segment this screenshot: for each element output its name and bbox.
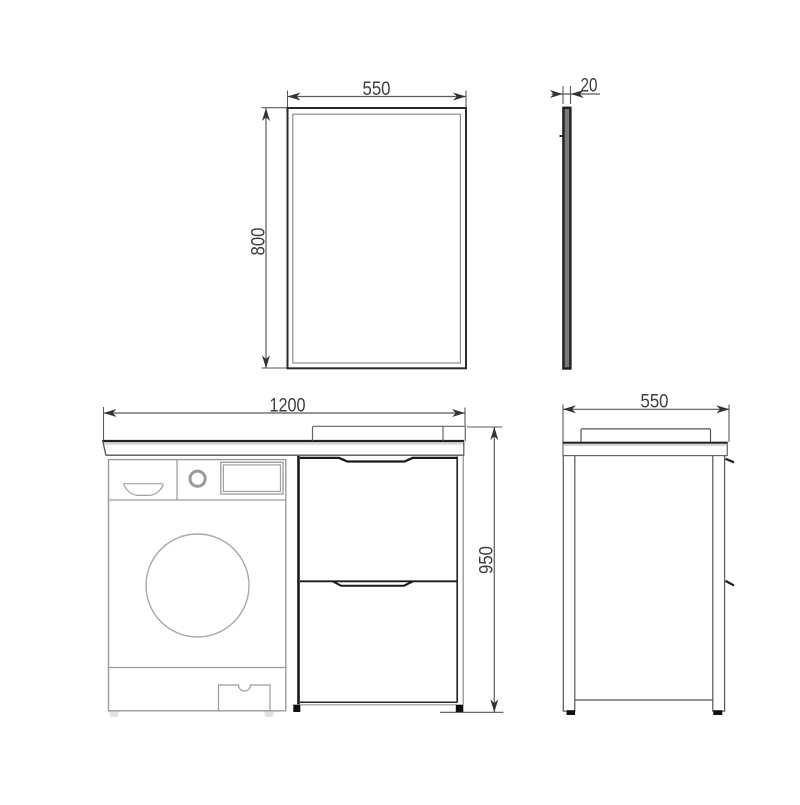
- svg-text:1200: 1200: [270, 396, 306, 417]
- svg-text:550: 550: [641, 392, 669, 413]
- svg-text:20: 20: [581, 76, 598, 97]
- svg-text:800: 800: [249, 228, 270, 256]
- svg-text:950: 950: [477, 546, 498, 574]
- svg-text:550: 550: [363, 79, 391, 100]
